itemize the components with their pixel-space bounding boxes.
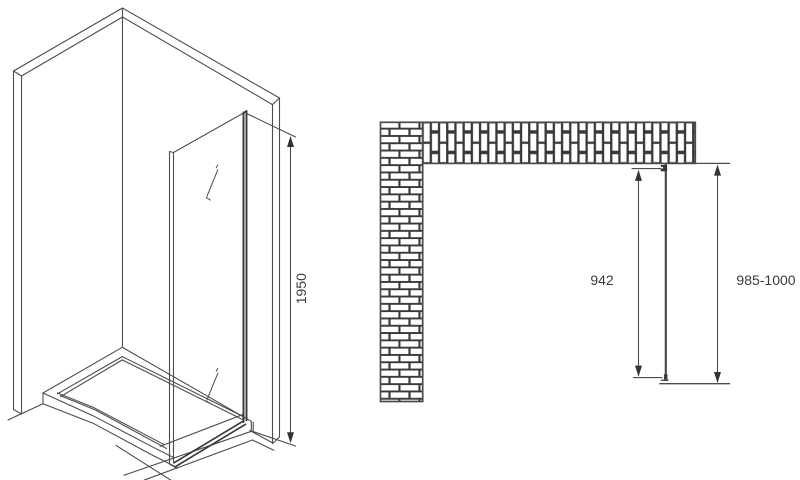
svg-text:985-1000: 985-1000	[736, 272, 795, 288]
svg-text:942: 942	[590, 272, 614, 288]
svg-text:1950: 1950	[293, 273, 309, 304]
